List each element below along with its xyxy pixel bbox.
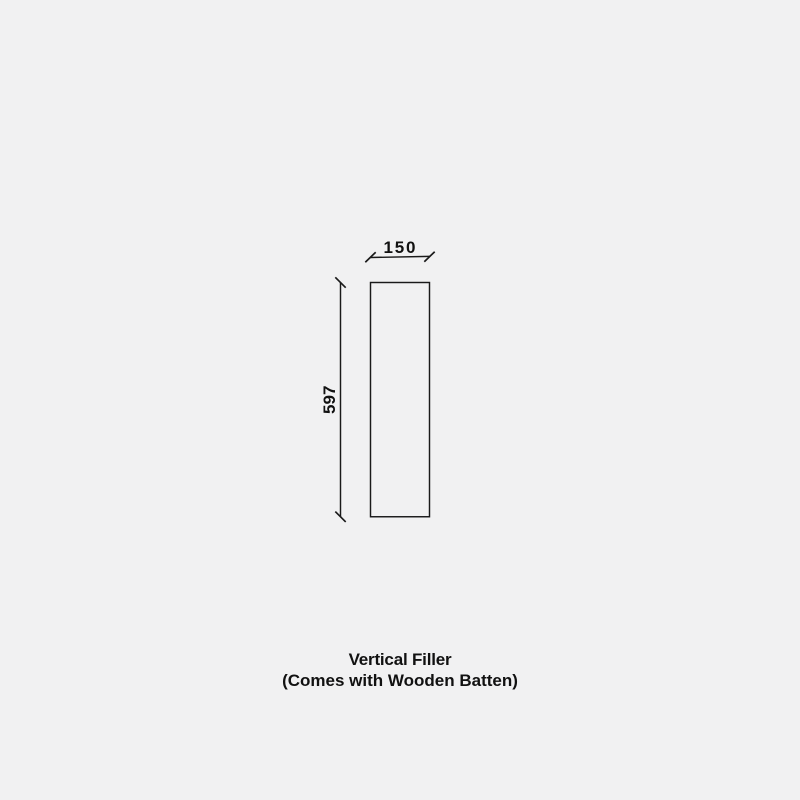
svg-text:150: 150 [384, 238, 416, 257]
svg-text:597: 597 [320, 386, 339, 415]
